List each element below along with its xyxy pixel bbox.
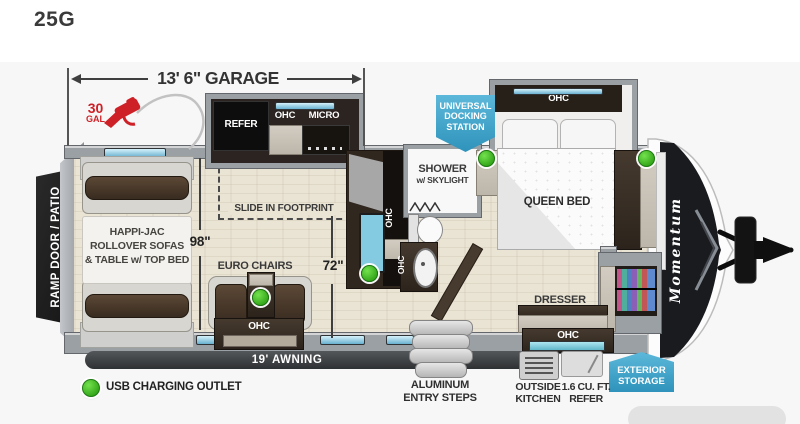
euro-chairs-label: EURO CHAIRS: [205, 260, 305, 273]
shower: SHOWER w/ SKYLIGHT: [404, 145, 481, 217]
dim-98-label: 98": [181, 234, 219, 250]
ohc-label-vertical: OHC: [385, 201, 399, 235]
usb-outlet-dot: [638, 150, 655, 167]
bath-sink: [413, 248, 438, 288]
faucet: [421, 262, 425, 266]
ramp-door-label: RAMP DOOR / PATIO: [50, 172, 66, 322]
mini-refer-line: 1.6 CU. FT.: [556, 381, 616, 393]
sofa-label-box: HAPPI-JAC ROLLOVER SOFAS & TABLE w/ TOP …: [82, 216, 192, 284]
usb-outlet-dot: [478, 150, 495, 167]
closet-rod: [615, 288, 657, 290]
refer-door-line: [587, 355, 598, 374]
fuel-unit: GAL: [86, 115, 105, 124]
front-wardrobe: [614, 150, 642, 250]
dim-line: [287, 78, 353, 80]
sofa-label-line: HAPPI-JAC: [83, 225, 191, 239]
toilet: [417, 216, 443, 244]
tv-screen: [359, 213, 385, 273]
exterior-storage-line: STORAGE: [609, 376, 674, 387]
grill-lines: [525, 357, 553, 374]
steps-line: ENTRY STEPS: [398, 392, 482, 405]
floorplan-page: 25G RAMP DOOR / PATIO 19' AWNING: [0, 0, 800, 424]
bed-ohc: OHC: [495, 85, 622, 112]
stove-knobs: [308, 147, 342, 150]
shower-label: SHOWER: [408, 149, 477, 176]
shower-label-2: w/ SKYLIGHT: [408, 176, 477, 186]
dim-line: [80, 78, 148, 80]
entry-steps-label: ALUMINUM ENTRY STEPS: [398, 379, 482, 404]
side-table-top: [249, 274, 273, 286]
usb-outlet-dot: [361, 265, 378, 282]
steps-line: ALUMINUM: [398, 379, 482, 392]
slide-footprint-label: SLIDE IN FOOTPRINT: [228, 203, 340, 215]
mini-refer-line: REFER: [556, 393, 616, 405]
dim-arrow-right: [352, 74, 362, 84]
dresser-label: DRESSER: [530, 294, 590, 307]
mini-refer-unit: [561, 351, 603, 377]
kitchen-slide: REFER OHC MICRO: [206, 94, 364, 168]
dim-tick: [363, 68, 365, 146]
refrigerator: REFER: [213, 101, 269, 151]
accordion-door-icon: [409, 202, 443, 212]
usb-legend-dot: [82, 379, 100, 397]
dim-line-98: [199, 256, 201, 330]
ohc-label: OHC: [215, 319, 303, 332]
hanging-clothes: [617, 269, 655, 311]
dim-tick: [67, 68, 69, 146]
docking-line: STATION: [436, 122, 495, 132]
fuel-amount: 30: [86, 101, 105, 115]
sofa-label-line: & TABLE w/ TOP BED: [83, 253, 191, 267]
dim-line-98: [199, 158, 201, 230]
sofa-label-line: ROLLOVER SOFAS: [83, 239, 191, 253]
stove: [302, 125, 350, 155]
sofa-cushion: [85, 294, 189, 318]
refer-label: REFER: [214, 102, 268, 130]
fuel-nozzle-icon: [104, 96, 141, 128]
entry-steps: [415, 362, 467, 378]
ohc-label: OHC: [523, 329, 613, 341]
kitchen-counter: [269, 125, 303, 155]
ohc-label-vertical: OHC: [397, 248, 409, 282]
garage-dimension-label: 13' 6" GARAGE: [148, 68, 288, 88]
usb-legend-label: USB CHARGING OUTLET: [106, 381, 276, 394]
docking-line: UNIVERSAL: [436, 95, 495, 111]
bed-ohc-window: [513, 88, 603, 95]
queen-bed-label: QUEEN BED: [512, 196, 602, 209]
docking-line: DOCKING: [436, 111, 495, 121]
kitchen-window: [275, 102, 335, 110]
ohc-cabinet-bedroom: OHC: [522, 328, 614, 353]
closet-interior: [615, 266, 657, 316]
ohc-window: [529, 341, 605, 351]
usb-outlet-dot: [252, 289, 269, 306]
fuel-hose: [137, 95, 203, 149]
sofa-cushion: [85, 176, 189, 200]
dim-72-label: 72": [314, 258, 352, 274]
fuel-station-label: 30 GAL: [86, 101, 105, 124]
awning-label: 19' AWNING: [227, 354, 347, 367]
micro-label: MICRO: [303, 111, 345, 121]
ohc-window: [223, 335, 297, 347]
dim-line-72: [331, 284, 333, 338]
outside-kitchen-unit: [519, 351, 559, 380]
brand-logo: Momentum: [668, 180, 684, 320]
dim-line-72: [331, 216, 333, 258]
mini-refer-label: 1.6 CU. FT. REFER: [556, 381, 616, 405]
ohc-cabinet-garage: OHC: [214, 318, 304, 350]
ohc-label: OHC: [269, 111, 301, 121]
